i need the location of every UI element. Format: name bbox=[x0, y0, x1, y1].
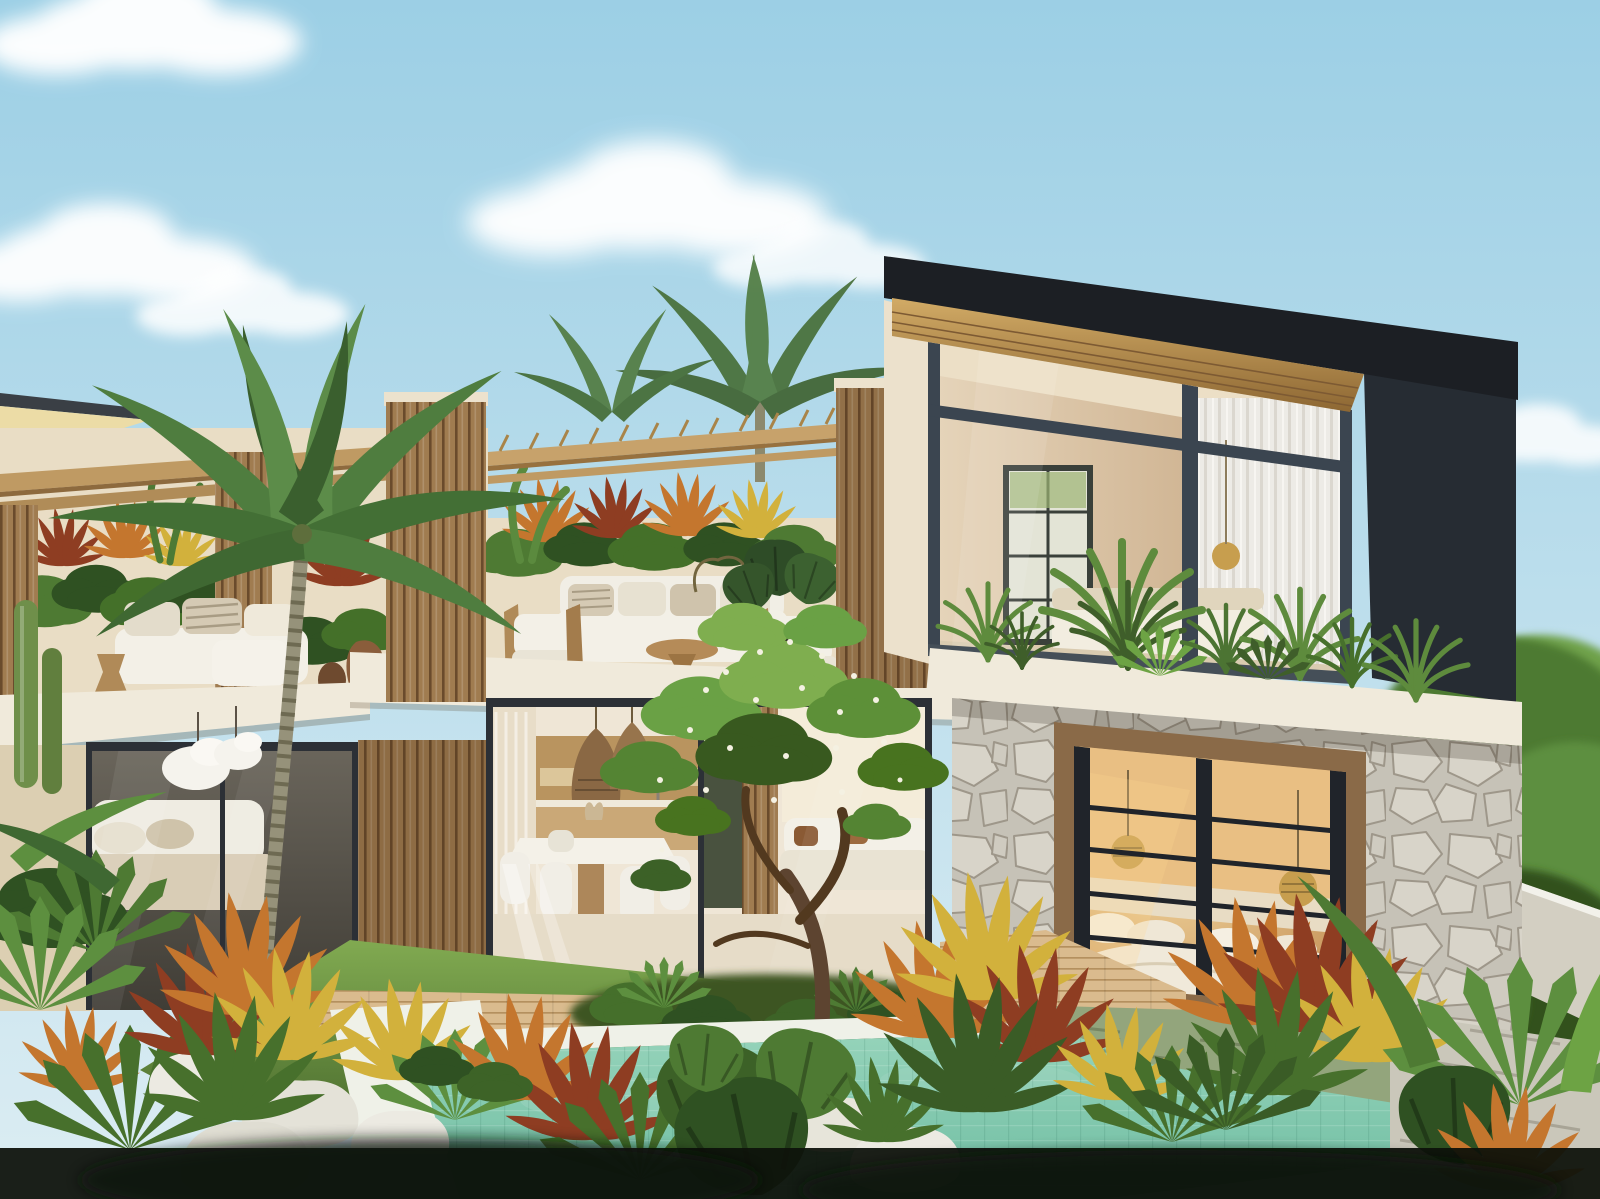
sofa-cushion bbox=[670, 584, 716, 616]
villa-rendering bbox=[0, 0, 1600, 1199]
lounge-chair bbox=[212, 640, 288, 686]
scene-canvas bbox=[0, 0, 1600, 1199]
dining-table bbox=[506, 838, 678, 864]
table-pedestal bbox=[578, 864, 604, 922]
corner-wall-strip bbox=[884, 300, 930, 664]
palm-crown-base bbox=[292, 524, 312, 544]
sofa-cushion bbox=[618, 582, 666, 616]
gold-pendant bbox=[1212, 542, 1240, 570]
